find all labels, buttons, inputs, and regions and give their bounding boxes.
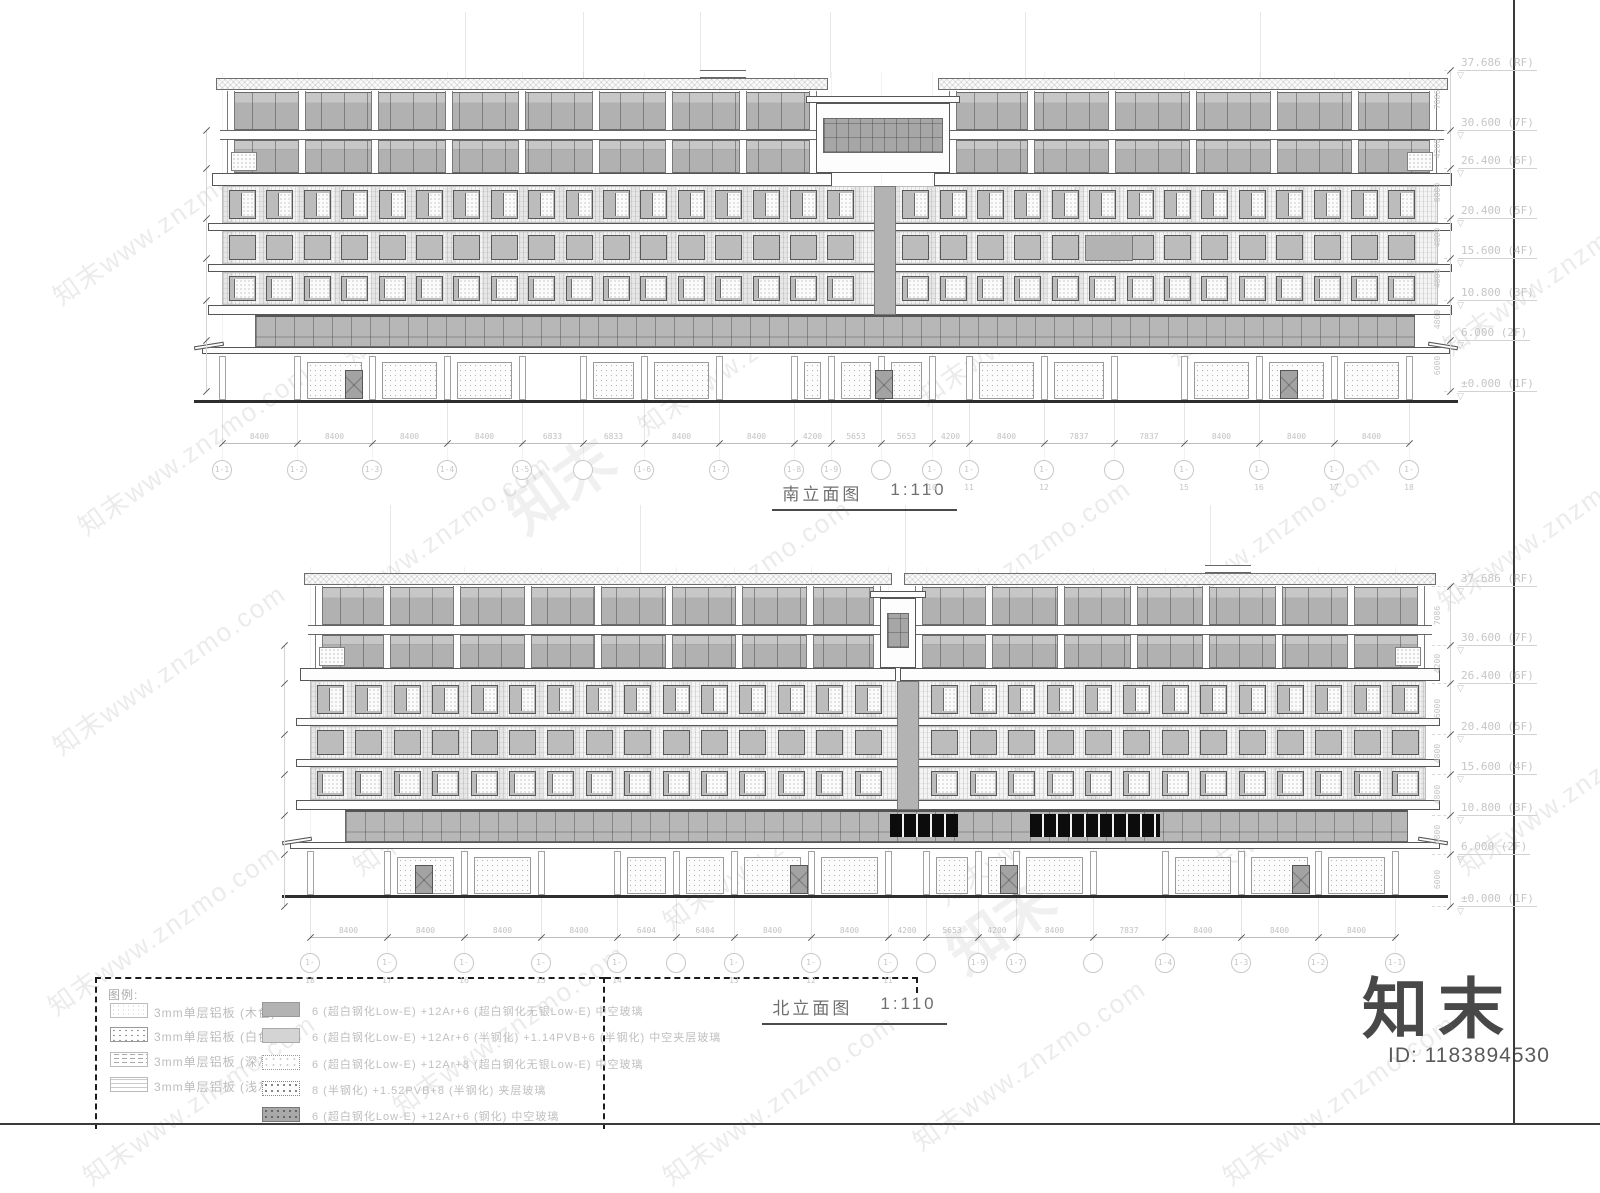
facade-pier [985, 634, 993, 669]
window [827, 190, 854, 219]
second-floor-glazing-band [255, 315, 1415, 347]
window [1164, 276, 1191, 301]
window [304, 276, 331, 301]
window [432, 730, 459, 755]
facade-pier [665, 139, 673, 174]
storefront-glazing [474, 857, 531, 894]
window [1392, 685, 1419, 714]
level-marker: ▽ [1457, 168, 1464, 179]
window [341, 235, 368, 260]
bubble-leader [1016, 937, 1017, 953]
bubble-leader [1114, 443, 1115, 460]
ground-line [194, 400, 1458, 403]
floor-slab [296, 718, 1440, 726]
window [509, 730, 536, 755]
window [1315, 730, 1342, 755]
level-marker: ▽ [1457, 70, 1464, 81]
window [1388, 276, 1415, 301]
window [624, 771, 651, 796]
window [547, 685, 574, 714]
extension-line [372, 403, 373, 443]
window [394, 730, 421, 755]
floor-slab [296, 759, 1440, 767]
window [379, 190, 406, 219]
level-label: 30.600 (7F) [1458, 631, 1537, 646]
bubble-leader [932, 443, 933, 460]
facade-pier [592, 91, 600, 131]
grid-bubble: 1-4 [1155, 953, 1175, 973]
extension-line [1114, 403, 1115, 443]
entrance-door [345, 370, 363, 399]
bubble-leader [811, 937, 812, 953]
column [1111, 356, 1118, 400]
window [1047, 685, 1074, 714]
window [1314, 190, 1341, 219]
facade-pier [1275, 586, 1283, 626]
entrance-door [1292, 865, 1310, 894]
facade-pier [1202, 586, 1210, 626]
vertical-dim-value: 4200 [1433, 139, 1442, 158]
bubble-leader [888, 937, 889, 953]
level-marker: ▽ [1457, 815, 1464, 826]
extension-line [522, 403, 523, 443]
window [491, 190, 518, 219]
legend-boundary-corner [916, 977, 918, 993]
facade-pier [298, 91, 306, 131]
window [701, 685, 728, 714]
grid-bubble: 1-17 [377, 953, 397, 973]
vent-grille [1407, 152, 1433, 171]
bubble-leader [1409, 443, 1410, 460]
dimension-value: 7837 [1127, 432, 1171, 442]
dimension-value: 4200 [975, 926, 1019, 936]
extension-line [881, 403, 882, 443]
facade-pier [1027, 139, 1035, 174]
dimension-value: 8400 [313, 432, 357, 442]
window [1277, 730, 1304, 755]
dimension-value: 8400 [238, 432, 282, 442]
window [715, 190, 742, 219]
bubble-leader [831, 443, 832, 460]
window [432, 685, 459, 714]
grid-extension-line [465, 12, 466, 78]
extension-line [617, 898, 618, 937]
window [678, 190, 705, 219]
level-label: 15.600 (4F) [1458, 760, 1537, 775]
window [977, 190, 1004, 219]
window [1392, 730, 1419, 755]
bubble-leader [1259, 443, 1260, 460]
window [1392, 771, 1419, 796]
cad-sheet: 南立面图 1:110 北立面图 1:110 图例: 知末 ID: 1183894… [0, 0, 1600, 1129]
link-glazing [887, 613, 909, 648]
grid-bubble [871, 460, 891, 480]
window [855, 685, 882, 714]
level-label: 10.800 (3F) [1458, 286, 1537, 301]
extension-line [1334, 403, 1335, 443]
window [753, 276, 780, 301]
column [1181, 356, 1188, 400]
bubble-leader [1165, 937, 1166, 953]
column [731, 851, 738, 895]
grid-bubble: 1-15 [531, 953, 551, 973]
entrance-door [1280, 370, 1298, 399]
window [266, 235, 293, 260]
level-marker: ▽ [1457, 300, 1464, 311]
grid-bubble: 1-2 [287, 460, 307, 480]
window [1354, 685, 1381, 714]
facade-pier [1108, 139, 1116, 174]
window [416, 276, 443, 301]
storefront-glazing [686, 857, 724, 894]
window [453, 190, 480, 219]
watermark-text: 知末www.znzmo.com [1214, 1004, 1462, 1193]
facade-pier [739, 139, 747, 174]
core-panel [874, 186, 896, 315]
grid-bubble: 1-17 [1324, 460, 1344, 480]
extension-line [310, 898, 311, 937]
window [266, 190, 293, 219]
grid-extension-line [583, 12, 584, 78]
facade-pier [1417, 586, 1425, 626]
bubble-leader [794, 443, 795, 460]
bubble-leader [1334, 443, 1335, 460]
floor-slab [208, 264, 1452, 272]
level-label: 6.000 (2F) [1458, 840, 1530, 855]
floor-slab [208, 223, 1452, 231]
dimension-line [222, 443, 1409, 444]
window [778, 771, 805, 796]
window [970, 685, 997, 714]
vent-grille [319, 647, 345, 666]
window [528, 235, 555, 260]
vertical-dim-value: 6000 [1433, 183, 1442, 202]
grid-extension-line [1260, 12, 1261, 78]
column [1041, 356, 1048, 400]
window [1277, 685, 1304, 714]
bubble-leader [1184, 443, 1185, 460]
window [816, 771, 843, 796]
window [1085, 730, 1112, 755]
extension-line [719, 403, 720, 443]
dimension-value: 8400 [1275, 432, 1319, 442]
dimension-line [310, 937, 1395, 938]
bubble-leader [1044, 443, 1045, 460]
window [778, 730, 805, 755]
storefront-glazing [1026, 857, 1083, 894]
window [1123, 730, 1150, 755]
window [940, 276, 967, 301]
facade-pier [1108, 91, 1116, 131]
dimension-value: 8400 [481, 926, 525, 936]
window [1085, 685, 1112, 714]
vertical-dim-value: 4800 [1433, 744, 1442, 763]
storefront-glazing [1054, 362, 1104, 399]
window [790, 276, 817, 301]
legend-swatch-stipple [262, 1055, 300, 1070]
extension-line [447, 403, 448, 443]
grid-bubble: 1-3 [1231, 953, 1251, 973]
window [586, 730, 613, 755]
storefront-glazing [821, 857, 878, 894]
window [640, 190, 667, 219]
window [1201, 190, 1228, 219]
grid-extension-line [640, 505, 641, 573]
dark-panel-group [890, 814, 958, 837]
dimension-value: 4200 [929, 432, 973, 442]
window [603, 276, 630, 301]
window [1201, 276, 1228, 301]
window [379, 235, 406, 260]
window [453, 276, 480, 301]
window [778, 685, 805, 714]
facade-pier [665, 586, 673, 626]
storefront-glazing [593, 362, 634, 399]
level-marker: ▽ [1457, 340, 1464, 351]
roof-parapet [216, 78, 828, 90]
window [977, 276, 1004, 301]
window [1315, 685, 1342, 714]
column [808, 851, 815, 895]
level-label: 26.400 (6F) [1458, 154, 1537, 169]
bubble-leader [464, 937, 465, 953]
core-panel [897, 681, 919, 810]
legend-swatch-stipple-dark [262, 1107, 300, 1122]
legend-label: 6 (超白钢化Low-E) +12Ar+6 (超白钢化无银Low-E) 中空玻璃 [312, 1003, 644, 1019]
extension-line [583, 403, 584, 443]
projecting-slab [900, 668, 1440, 681]
level-marker: ▽ [1457, 645, 1464, 656]
dimension-value: 4200 [885, 926, 929, 936]
bubble-leader [617, 937, 618, 953]
dimension-value: 8400 [1258, 926, 1302, 936]
level-marker: ▽ [1457, 258, 1464, 269]
window [1014, 190, 1041, 219]
projecting-slab [934, 173, 1452, 186]
vertical-dim-value: 6000 [1433, 870, 1442, 889]
window [453, 235, 480, 260]
level-marker: ▽ [1457, 391, 1464, 402]
grid-bubble: 1-2 [1308, 953, 1328, 973]
window [1239, 276, 1266, 301]
window [229, 235, 256, 260]
watermark-text: 知末www.znzmo.com [44, 574, 292, 763]
dimension-value: 8400 [327, 926, 371, 936]
extension-line [1409, 403, 1410, 443]
window [471, 730, 498, 755]
window [855, 771, 882, 796]
facade-pier [1027, 91, 1035, 131]
facade-pier [298, 139, 306, 174]
facade-pier [383, 634, 391, 669]
window [1201, 235, 1228, 260]
roof-parapet [304, 573, 892, 585]
facade-pier [735, 586, 743, 626]
vertical-dim-value: 6000 [1433, 355, 1442, 374]
window [1052, 276, 1079, 301]
level-label: 15.600 (4F) [1458, 244, 1537, 259]
window [902, 190, 929, 219]
bubble-leader [676, 937, 677, 953]
facade-pier [915, 634, 923, 669]
bubble-leader [978, 937, 979, 953]
chain-tick [1447, 388, 1454, 395]
facade-pier [1130, 586, 1138, 626]
facade-pier [1270, 139, 1278, 174]
grid-bubble: 1-8 [784, 460, 804, 480]
bubble-leader [1093, 937, 1094, 953]
floor-slab [942, 130, 1444, 140]
extension-line [297, 403, 298, 443]
facade-pier [445, 139, 453, 174]
dimension-value: 8400 [463, 432, 507, 442]
facade-pier [1130, 634, 1138, 669]
grid-extension-line [390, 505, 391, 573]
dimension-value: 8400 [751, 926, 795, 936]
level-label: 20.400 (5F) [1458, 720, 1537, 735]
vertical-dim-value: 4800 [1433, 784, 1442, 803]
grid-bubble: 1-18 [1399, 460, 1419, 480]
entrance-door [790, 865, 808, 894]
dimension-value: 4200 [791, 432, 835, 442]
grid-extension-line [1025, 12, 1026, 78]
storefront-glazing [1175, 857, 1231, 894]
window [1351, 190, 1378, 219]
window [1085, 771, 1112, 796]
column [1162, 851, 1169, 895]
entrance-door [415, 865, 433, 894]
bubble-leader [447, 443, 448, 460]
column [1090, 851, 1097, 895]
window [1276, 276, 1303, 301]
window [739, 771, 766, 796]
window [416, 190, 443, 219]
window [1164, 235, 1191, 260]
window [566, 276, 593, 301]
entrance-door [1000, 865, 1018, 894]
dimension-value: 8400 [1335, 926, 1379, 936]
facade-pier [518, 91, 526, 131]
window [931, 730, 958, 755]
grid-bubble [1104, 460, 1124, 480]
facade-pier [806, 586, 814, 626]
window [827, 235, 854, 260]
window [1052, 190, 1079, 219]
facade-pier [518, 139, 526, 174]
column [1238, 851, 1245, 895]
facade-pier [735, 634, 743, 669]
chain-tick [203, 388, 210, 395]
facade-pier [1057, 586, 1065, 626]
dim-chain-line [1450, 586, 1451, 906]
window [1200, 685, 1227, 714]
window [379, 276, 406, 301]
roof-equipment [1205, 565, 1251, 573]
storefront-glazing [627, 857, 666, 894]
grid-bubble: 1-10 [922, 460, 942, 480]
legend-swatch-dash-lines [110, 1052, 148, 1067]
dimension-value: 8400 [557, 926, 601, 936]
window [1014, 235, 1041, 260]
window [1239, 235, 1266, 260]
window [1277, 771, 1304, 796]
window [753, 235, 780, 260]
storefront-glazing [804, 362, 821, 399]
level-label: 10.800 (3F) [1458, 801, 1537, 816]
grid-bubble: 1-1 [1385, 953, 1405, 973]
window [1314, 235, 1341, 260]
extension-line [541, 898, 542, 937]
window [1354, 730, 1381, 755]
window [1315, 771, 1342, 796]
link-glazing [823, 118, 943, 153]
column [716, 356, 723, 400]
vent-grille [1395, 647, 1421, 666]
window [816, 730, 843, 755]
vertical-dim-value: 7086 [1433, 90, 1442, 109]
window [1200, 730, 1227, 755]
grid-extension-line [700, 12, 701, 78]
legend-swatch-dots-sparse [110, 1003, 148, 1018]
grid-bubble: 1-4 [437, 460, 457, 480]
column [538, 851, 545, 895]
level-marker: ▽ [1457, 906, 1464, 917]
facade-panel [1085, 235, 1133, 261]
window [1276, 190, 1303, 219]
window [1008, 730, 1035, 755]
vertical-dim-value: 4800 [1433, 228, 1442, 247]
level-label: 30.600 (7F) [1458, 116, 1537, 131]
window [1123, 685, 1150, 714]
dimension-value: 7837 [1107, 926, 1151, 936]
window [416, 235, 443, 260]
extension-line [1165, 898, 1166, 937]
roof-parapet [904, 573, 1436, 585]
window [471, 685, 498, 714]
window [640, 235, 667, 260]
grid-bubble: 1-11 [959, 460, 979, 480]
link-roof-slab [870, 591, 926, 598]
bubble-leader [372, 443, 373, 460]
window [509, 685, 536, 714]
column [923, 851, 930, 895]
dark-panel-group [1030, 814, 1160, 837]
window [1089, 190, 1116, 219]
window [341, 190, 368, 219]
dimension-value: 5653 [930, 926, 974, 936]
facade-pier [1347, 586, 1355, 626]
grid-bubble: 1-15 [1174, 460, 1194, 480]
bubble-leader [969, 443, 970, 460]
column [673, 851, 680, 895]
dimension-value: 8400 [1033, 926, 1077, 936]
north-title-text: 北立面图 [772, 994, 852, 1019]
grid-extension-line [1210, 505, 1211, 573]
window [663, 685, 690, 714]
window [1127, 190, 1154, 219]
floor-slab [308, 625, 888, 635]
bubble-leader [926, 937, 927, 953]
north-elevation-title: 北立面图 1:110 [762, 994, 947, 1025]
window [753, 190, 780, 219]
legend-swatch-solid-gray [262, 1002, 300, 1017]
extension-line [1241, 898, 1242, 937]
column [580, 356, 587, 400]
window [1276, 235, 1303, 260]
storefront-glazing [979, 362, 1034, 399]
level-label: 26.400 (6F) [1458, 669, 1537, 684]
level-marker: ▽ [1457, 854, 1464, 865]
